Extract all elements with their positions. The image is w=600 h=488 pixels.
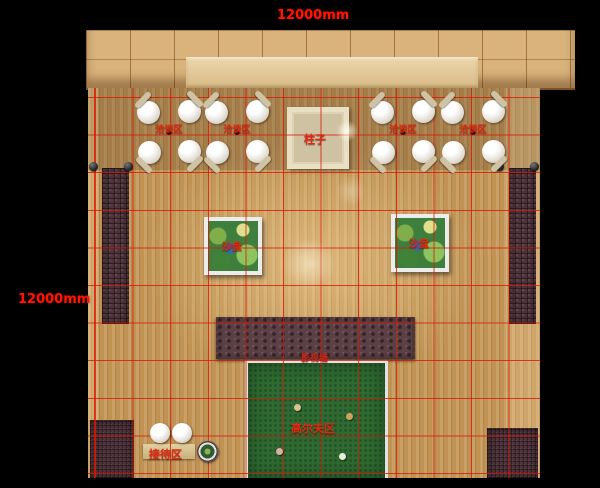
sand-table-label: 沙盘 bbox=[222, 238, 242, 253]
golf-ball bbox=[276, 448, 283, 455]
stool-icon bbox=[124, 162, 133, 171]
chair bbox=[205, 101, 228, 124]
floorplan-canvas: 12000mm 12000mm 柱子 洽谈区 洽谈区 洽谈区 bbox=[0, 0, 600, 488]
reception-stool bbox=[172, 423, 192, 443]
chair bbox=[206, 141, 229, 164]
negotiation-area-1: 洽谈区 bbox=[137, 100, 201, 164]
negotiation-area-4: 洽谈区 bbox=[441, 100, 505, 164]
potted-plant bbox=[197, 441, 218, 462]
reception-stool bbox=[150, 423, 170, 443]
brick-path-left bbox=[102, 168, 129, 324]
chair bbox=[246, 100, 269, 123]
chair bbox=[178, 140, 201, 163]
stool-icon bbox=[530, 162, 539, 171]
golf-ball bbox=[339, 453, 346, 460]
brick-corner-bottom-left bbox=[90, 420, 134, 478]
chair bbox=[482, 140, 505, 163]
golf-area bbox=[245, 360, 388, 478]
chair bbox=[246, 140, 269, 163]
stool-icon bbox=[89, 162, 98, 171]
brick-path-right bbox=[509, 168, 536, 324]
chair bbox=[442, 141, 465, 164]
golf-ball bbox=[346, 413, 353, 420]
left-wall-base bbox=[88, 88, 98, 420]
negotiation-label: 洽谈区 bbox=[441, 122, 505, 135]
back-wall bbox=[186, 57, 478, 88]
reception-label: 接待区 bbox=[149, 446, 182, 462]
chair bbox=[137, 101, 160, 124]
negotiation-area-3: 洽谈区 bbox=[371, 100, 435, 164]
negotiation-label: 洽谈区 bbox=[137, 122, 201, 135]
golf-label: 高尔夫区 bbox=[291, 420, 335, 436]
chair bbox=[138, 141, 161, 164]
negotiation-area-2: 洽谈区 bbox=[205, 100, 269, 164]
brick-corner-bottom-right bbox=[487, 428, 538, 478]
negotiation-label: 洽谈区 bbox=[371, 122, 435, 135]
chair bbox=[178, 100, 201, 123]
chair bbox=[371, 101, 394, 124]
dimension-label-left: 12000mm bbox=[18, 292, 90, 307]
pillar-label: 柱子 bbox=[304, 131, 326, 147]
chair bbox=[372, 141, 395, 164]
negotiation-label: 洽谈区 bbox=[205, 122, 269, 135]
sand-table-label: 沙盘 bbox=[409, 235, 429, 250]
chair bbox=[412, 140, 435, 163]
chair bbox=[482, 100, 505, 123]
chair bbox=[412, 100, 435, 123]
chair bbox=[441, 101, 464, 124]
dimension-label-top: 12000mm bbox=[277, 8, 349, 23]
golf-ball bbox=[294, 404, 301, 411]
media-wall-label: 影视墙 bbox=[301, 351, 328, 364]
